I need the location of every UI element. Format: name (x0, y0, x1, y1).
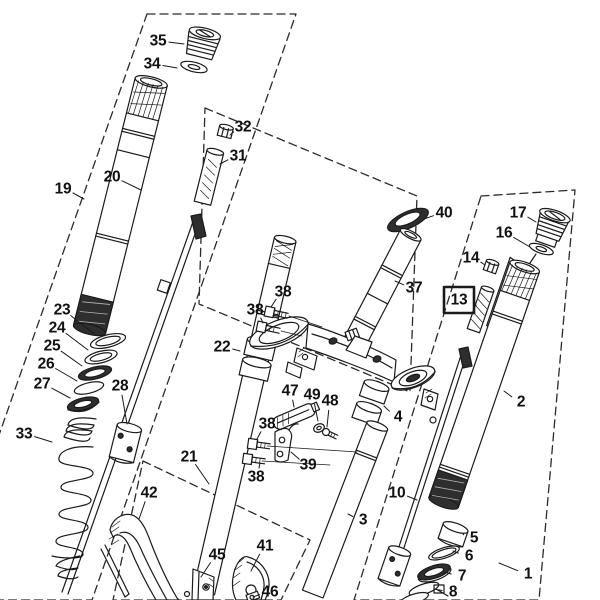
leader-line-42 (139, 502, 145, 519)
part-label-6[interactable]: 6 (465, 548, 474, 565)
leader-line-24 (66, 333, 88, 350)
lower-triple-clamp (246, 310, 438, 410)
nut-14 (483, 258, 499, 274)
guide-bolt-38-lower (242, 453, 265, 466)
guide-bushings-4 (352, 377, 390, 425)
part-label-16[interactable]: 16 (496, 225, 513, 242)
leader-line-38 (259, 463, 260, 468)
part-label-31[interactable]: 31 (230, 148, 247, 165)
leader-line-4 (384, 406, 389, 411)
part-label-20[interactable]: 20 (104, 169, 121, 186)
leader-line-22 (233, 349, 240, 351)
leader-line-39 (291, 452, 299, 459)
part-label-10[interactable]: 10 (389, 485, 406, 502)
nut-32 (217, 123, 234, 138)
part-label-5[interactable]: 5 (470, 530, 479, 547)
leader-line-17 (528, 217, 536, 222)
leader-line-27 (52, 388, 70, 398)
part-label-38[interactable]: 38 (247, 302, 264, 319)
cylinder-31 (194, 147, 224, 205)
fork-guard-42 (101, 514, 179, 600)
part-label-13[interactable]: 13 (451, 292, 468, 309)
part-label-3[interactable]: 3 (359, 512, 368, 529)
part-label-21[interactable]: 21 (181, 449, 198, 466)
spring-seat-27 (66, 394, 100, 414)
part-label-32[interactable]: 32 (235, 119, 252, 136)
seal-ring-24 (84, 347, 119, 366)
part-label-26[interactable]: 26 (38, 356, 55, 373)
reflector-47 (271, 400, 320, 431)
dust-seal-partial (398, 590, 429, 600)
leader-line-1 (499, 563, 518, 571)
slide-bushing-5 (437, 519, 469, 549)
rebound-spring (64, 418, 96, 441)
exploded-fork-diagram: 3534201932313838403717161413223242526273… (0, 0, 600, 600)
parts-diagram-canvas: 3534201932313838403717161413223242526273… (0, 0, 600, 600)
part-label-4[interactable]: 4 (394, 409, 403, 426)
part-label-39[interactable]: 39 (300, 457, 317, 474)
guide-bolt-38-upper (247, 438, 270, 451)
outer-tube-20 (72, 73, 168, 338)
part-label-40[interactable]: 40 (436, 205, 453, 222)
part-label-47[interactable]: 47 (282, 383, 299, 400)
leader-line-38 (257, 432, 261, 439)
leader-line-26 (56, 369, 77, 382)
part-label-37[interactable]: 37 (406, 280, 423, 297)
part-label-27[interactable]: 27 (34, 376, 51, 393)
inner-tube-3 (302, 419, 388, 598)
part-label-1[interactable]: 1 (524, 566, 533, 583)
fork-cap-35 (184, 24, 222, 60)
leader-line-16 (514, 237, 530, 247)
leader-line-21 (196, 465, 210, 485)
part-label-35[interactable]: 35 (150, 33, 167, 50)
part-label-49[interactable]: 49 (304, 387, 321, 404)
leader-line-5 (463, 534, 464, 535)
part-label-24[interactable]: 24 (49, 320, 66, 337)
part-label-48[interactable]: 48 (322, 393, 339, 410)
part-label-45[interactable]: 45 (209, 547, 226, 564)
part-label-14[interactable]: 14 (463, 250, 480, 267)
leader-line-2 (504, 391, 512, 397)
part-label-38[interactable]: 38 (275, 284, 292, 301)
part-label-25[interactable]: 25 (44, 338, 61, 355)
leader-line-47 (293, 400, 294, 407)
part-label-38[interactable]: 38 (259, 416, 276, 433)
ring-26 (73, 379, 105, 396)
part-label-42[interactable]: 42 (141, 485, 158, 502)
part-label-23[interactable]: 23 (54, 302, 71, 319)
part-label-8[interactable]: 8 (449, 584, 458, 600)
part-label-7[interactable]: 7 (458, 568, 466, 585)
left-fork-assembly (52, 24, 234, 600)
part-label-33[interactable]: 33 (16, 426, 33, 443)
part-label-28[interactable]: 28 (112, 378, 129, 395)
fork-cap-17 (530, 206, 572, 250)
part-label-17[interactable]: 17 (510, 205, 527, 222)
washer-34 (180, 59, 209, 75)
leader-line-35 (169, 42, 184, 44)
part-label-2[interactable]: 2 (517, 394, 525, 411)
washer-6 (427, 543, 461, 563)
leader-line-25 (61, 351, 82, 366)
part-label-46[interactable]: 46 (262, 584, 279, 600)
part-label-22[interactable]: 22 (214, 339, 231, 356)
part-label-38[interactable]: 38 (248, 469, 265, 486)
part-label-19[interactable]: 19 (55, 181, 72, 198)
leader-line-14 (481, 262, 485, 265)
part-label-34[interactable]: 34 (144, 56, 161, 73)
leader-line-48 (327, 410, 329, 427)
screw-48 (321, 427, 338, 440)
part-label-41[interactable]: 41 (257, 538, 274, 555)
leader-line-33 (35, 437, 52, 442)
leader-line-19 (73, 193, 84, 199)
leader-line-34 (163, 66, 177, 69)
rod-clamp-28 (109, 420, 143, 465)
